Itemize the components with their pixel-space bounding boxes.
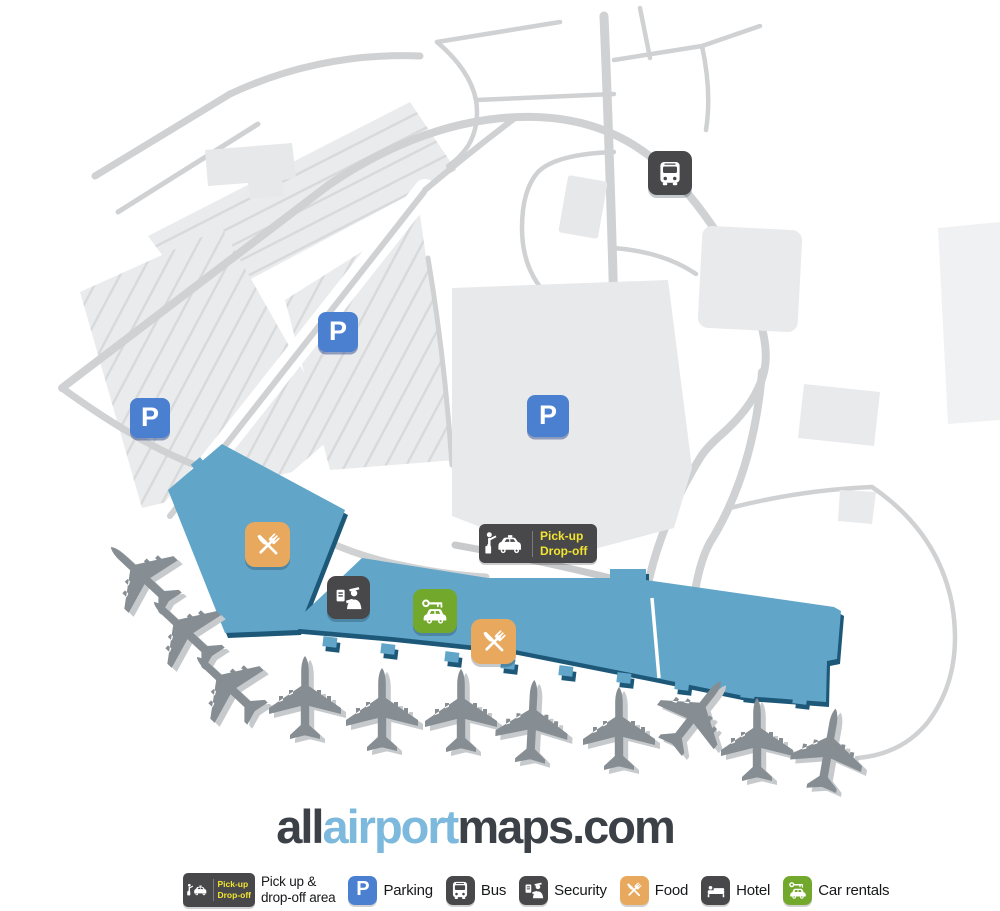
airport-map (0, 0, 1000, 911)
parking-letter: P (539, 402, 557, 429)
hotel-icon (701, 876, 730, 905)
food-marker[interactable] (471, 619, 516, 664)
parking-letter: P (141, 404, 159, 431)
legend-label: Parking (383, 882, 432, 899)
parking-icon: P (348, 876, 377, 905)
pickup-people-icon (187, 881, 211, 899)
bus-icon (446, 876, 475, 905)
pickup-dropoff-marker[interactable]: Pick-up Drop-off (479, 524, 597, 563)
security-icon (519, 876, 548, 905)
airplane-icon (86, 521, 196, 630)
airplane-icon (494, 678, 570, 765)
logo-all: all (276, 800, 322, 853)
security-marker[interactable] (327, 576, 370, 619)
pickup-dropoff-icon: Pick-up Drop-off (183, 873, 255, 907)
legend-item-food: Food (620, 876, 688, 905)
food-icon (251, 528, 285, 562)
parking-structure (452, 280, 692, 558)
legend-label: Bus (481, 882, 506, 899)
site-logo: allairportmaps.com (0, 799, 950, 854)
pickup-line: Pick-up (540, 529, 587, 544)
map-legend: Pick-up Drop-off Pick up & drop-off area… (183, 869, 889, 911)
airplane-icon (721, 698, 793, 781)
dropoff-line: Drop-off (540, 544, 587, 559)
airplane-icon (269, 656, 341, 739)
airplane-icon (425, 669, 497, 752)
car-rentals-icon (419, 595, 451, 627)
parking-marker[interactable]: P (527, 395, 569, 437)
logo-airport: airport (322, 800, 457, 853)
legend-label: Food (655, 882, 688, 899)
parking-marker[interactable]: P (318, 312, 358, 352)
airplane-icon (583, 687, 655, 770)
legend-label: Hotel (736, 882, 770, 899)
legend-item-bus: Bus (446, 876, 506, 905)
legend-item-security: Security (519, 876, 607, 905)
airplane-icon (786, 702, 871, 796)
logo-maps: maps.com (457, 800, 673, 853)
divider (532, 531, 533, 557)
food-icon (477, 625, 511, 659)
bus-marker[interactable] (648, 151, 692, 195)
bus-icon (655, 158, 685, 188)
airplane-icon (346, 668, 418, 751)
legend-item-parking: P Parking (348, 876, 432, 905)
airport-map-page: P P P Pick-up Drop-off allairportmaps.co… (0, 0, 1000, 911)
legend-item-pickup: Pick-up Drop-off Pick up & drop-off area (183, 873, 335, 907)
parking-marker[interactable]: P (130, 398, 170, 438)
car-rentals-icon (783, 876, 812, 905)
pickup-dropoff-icon (485, 530, 529, 557)
security-icon (333, 582, 364, 613)
legend-item-hotel: Hotel (701, 876, 770, 905)
parking-letter: P (329, 318, 347, 345)
legend-label: Security (554, 882, 607, 899)
legend-label: Pick up & drop-off area (261, 874, 335, 906)
car-rentals-marker[interactable] (413, 589, 457, 633)
legend-label: Car rentals (818, 882, 889, 899)
legend-item-car-rentals: Car rentals (783, 876, 889, 905)
food-icon (620, 876, 649, 905)
food-marker[interactable] (245, 522, 290, 567)
